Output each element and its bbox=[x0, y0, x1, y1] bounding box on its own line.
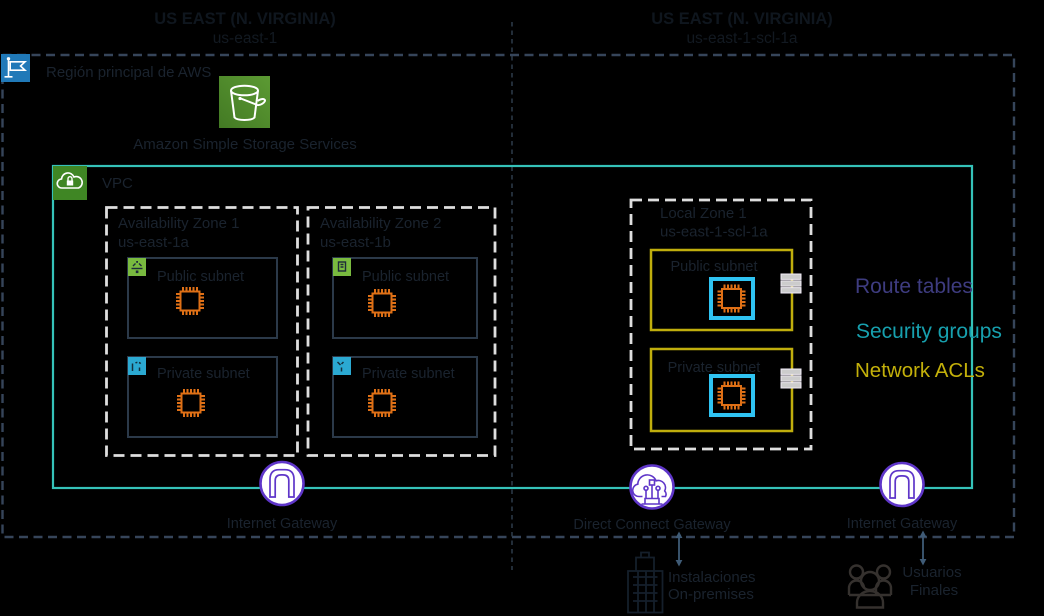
svg-text:Internet Gateway: Internet Gateway bbox=[847, 516, 958, 532]
svg-text:Public subnet: Public subnet bbox=[670, 259, 757, 275]
svg-text:Public subnet: Public subnet bbox=[362, 269, 449, 285]
svg-text:us-east-1-scl-1a: us-east-1-scl-1a bbox=[660, 224, 768, 241]
svg-text:Private subnet: Private subnet bbox=[668, 360, 761, 376]
svg-text:Availability Zone 1: Availability Zone 1 bbox=[118, 215, 239, 232]
svg-text:US EAST (N. VIRGINIA): US EAST (N. VIRGINIA) bbox=[651, 10, 833, 28]
svg-text:Región principal de AWS: Región principal de AWS bbox=[46, 64, 211, 81]
svg-text:Private subnet: Private subnet bbox=[157, 366, 250, 382]
svg-text:Usuarios: Usuarios bbox=[902, 564, 961, 581]
svg-text:On-premises: On-premises bbox=[668, 586, 754, 603]
svg-text:Local Zone 1: Local Zone 1 bbox=[660, 205, 747, 222]
svg-text:Direct Connect Gateway: Direct Connect Gateway bbox=[573, 517, 731, 533]
svg-text:Security groups: Security groups bbox=[856, 320, 1002, 343]
svg-text:Internet Gateway: Internet Gateway bbox=[227, 516, 338, 532]
svg-text:US EAST (N. VIRGINIA): US EAST (N. VIRGINIA) bbox=[154, 10, 336, 28]
svg-text:Instalaciones: Instalaciones bbox=[668, 569, 756, 586]
svg-text:Finales: Finales bbox=[910, 582, 958, 599]
svg-text:VPC: VPC bbox=[102, 175, 133, 192]
svg-text:Route tables: Route tables bbox=[855, 275, 973, 298]
svg-text:Network ACLs: Network ACLs bbox=[855, 359, 985, 382]
svg-text:us-east-1: us-east-1 bbox=[213, 30, 278, 47]
svg-text:Private subnet: Private subnet bbox=[362, 366, 455, 382]
svg-text:us-east-1-scl-1a: us-east-1-scl-1a bbox=[686, 30, 797, 47]
svg-text:Public subnet: Public subnet bbox=[157, 269, 244, 285]
svg-text:us-east-1b: us-east-1b bbox=[320, 234, 391, 251]
svg-text:us-east-1a: us-east-1a bbox=[118, 234, 190, 251]
svg-text:Amazon Simple Storage Services: Amazon Simple Storage Services bbox=[133, 136, 356, 153]
svg-text:Availability Zone 2: Availability Zone 2 bbox=[320, 215, 441, 232]
